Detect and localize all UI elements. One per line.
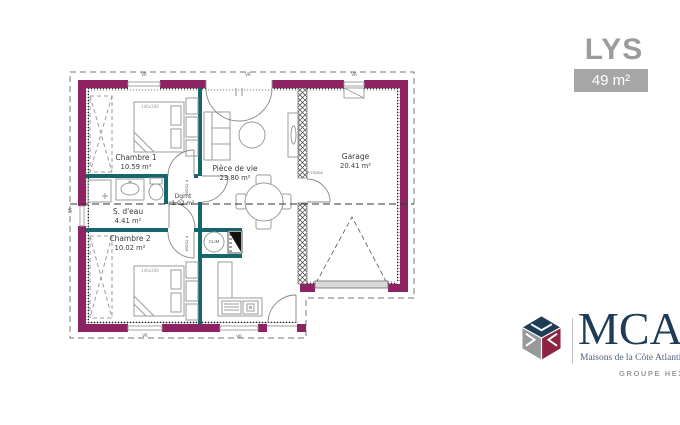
brand-divider: [572, 318, 573, 364]
page-title: LYS: [577, 33, 651, 67]
room-name: Chambre 2: [90, 234, 170, 244]
room-label-chambre1: Chambre 1 10.59 m²: [96, 153, 176, 172]
mca-logo: [519, 314, 564, 367]
tv-unit: [288, 113, 299, 157]
room-name: Garage: [318, 152, 393, 162]
shutter-label: VR: [231, 335, 247, 339]
garage-door: [315, 217, 388, 288]
brand-tagline: Maisons de la Côte Atlantique: [580, 353, 680, 363]
sink: [116, 179, 144, 200]
door-size-label: P 75/204: [303, 172, 327, 176]
shutter-label: VR: [240, 73, 256, 77]
mca-cube-icon: [519, 314, 564, 362]
bed-size-label: 140x200: [137, 269, 163, 273]
door-size-label: P 75/204: [184, 236, 188, 252]
shutter-label: VR: [346, 73, 362, 77]
brand-group: GROUPE HEXAOM: [619, 369, 680, 378]
clim-label: CLIM: [204, 240, 224, 245]
shutter-label: VR: [67, 208, 71, 214]
room-name: S. d'eau: [93, 207, 163, 217]
room-area: 10.02 m²: [90, 244, 170, 253]
floor-plan-page: Chambre 1 10.59 m² S. d'eau 4.41 m² Cham…: [0, 0, 680, 425]
room-area: 1.02 m²: [160, 201, 206, 209]
dining-table: [236, 175, 291, 229]
room-label-dgmt: Dgmt 1.02 m²: [160, 193, 206, 208]
room-area: 4.41 m²: [93, 217, 163, 226]
room-area: 10.59 m²: [96, 163, 176, 172]
area-badge: 49 m²: [574, 69, 648, 92]
sofa: [204, 112, 230, 160]
rug: [239, 122, 265, 148]
brand-name: MCA: [578, 306, 680, 352]
room-name: Chambre 1: [96, 153, 176, 163]
room-label-chambre2: Chambre 2 10.02 m²: [90, 234, 170, 253]
shutter-label: VR: [137, 334, 153, 338]
room-label-piece-de-vie: Pièce de vie 23.80 m²: [195, 164, 275, 183]
room-label-garage: Garage 20.41 m²: [318, 152, 393, 171]
bed-size-label: 140x200: [137, 105, 163, 109]
shower: [88, 180, 111, 202]
door-size-label: P 75/204: [184, 180, 188, 196]
shutter-label: VR: [136, 73, 152, 77]
room-name: Pièce de vie: [195, 164, 275, 174]
room-name: Dgmt: [160, 193, 206, 201]
room-area: 23.80 m²: [195, 174, 275, 183]
water-heater: [228, 231, 242, 253]
room-area: 20.41 m²: [318, 162, 393, 171]
kitchen-counter: [218, 262, 262, 316]
room-label-sdeau: S. d'eau 4.41 m²: [93, 207, 163, 226]
